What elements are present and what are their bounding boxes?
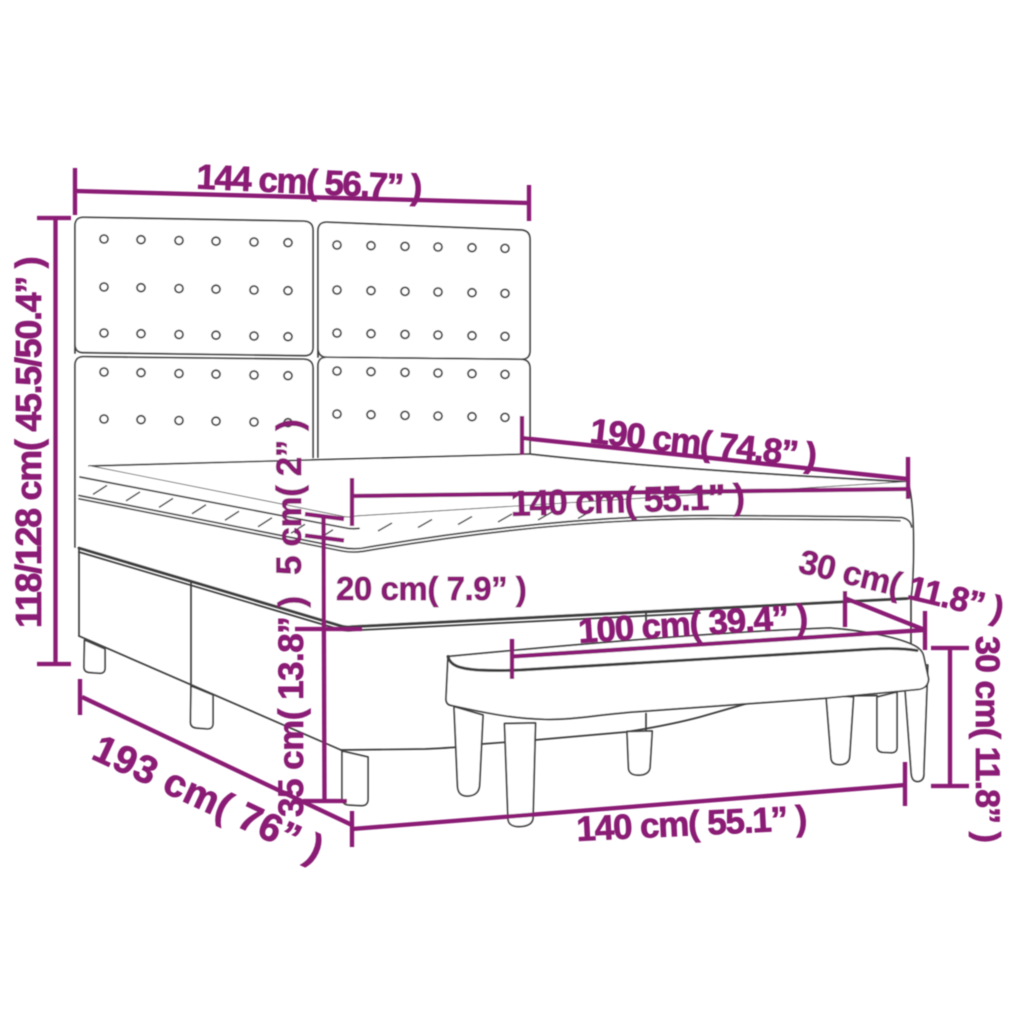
svg-text:30 cm( 11.8” ): 30 cm( 11.8” )	[968, 636, 1006, 842]
svg-text:140 cm( 55.1” ): 140 cm( 55.1” )	[510, 476, 745, 524]
svg-text:118/128 cm( 45.5/50.4” ): 118/128 cm( 45.5/50.4” )	[8, 257, 49, 628]
svg-text:5 cm( 2” ): 5 cm( 2” )	[270, 420, 309, 576]
svg-text:20 cm( 7.9” ): 20 cm( 7.9” )	[336, 570, 526, 607]
svg-text:35 cm( 13.8” ): 35 cm( 13.8” )	[272, 596, 311, 817]
